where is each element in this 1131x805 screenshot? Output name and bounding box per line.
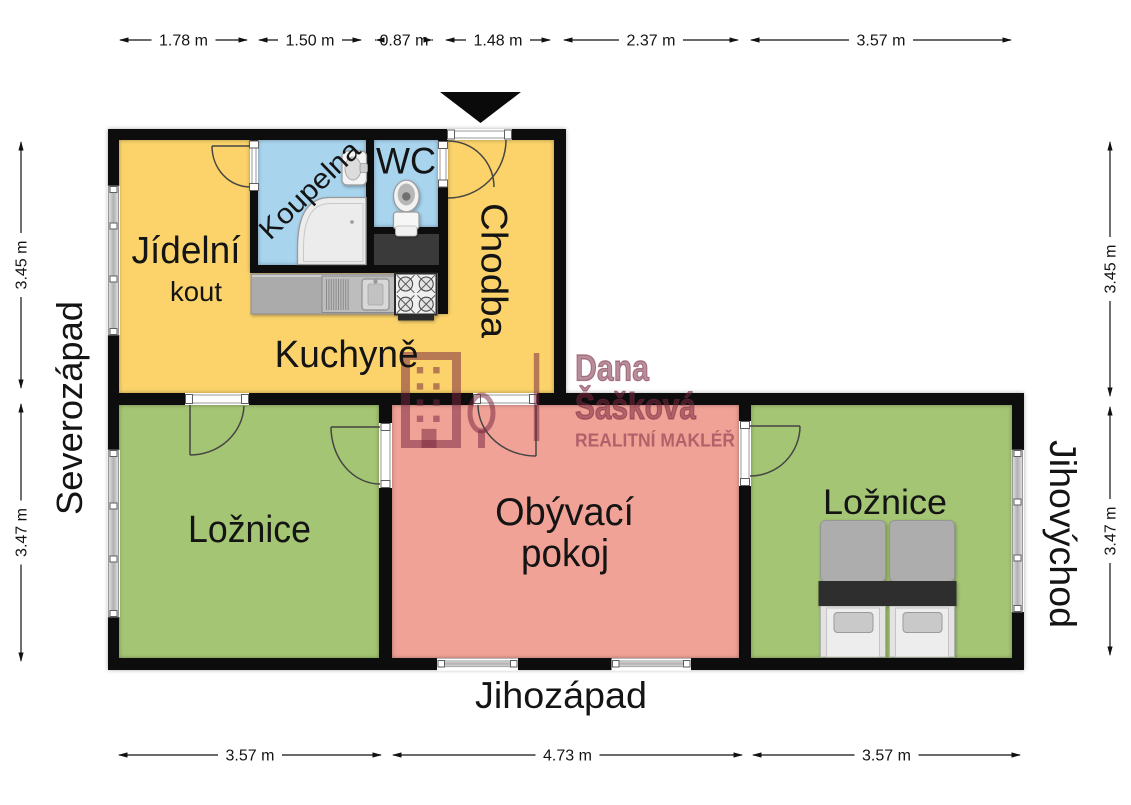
svg-text:3.45 m: 3.45 m	[14, 241, 31, 290]
svg-text:3.47 m: 3.47 m	[14, 508, 31, 557]
svg-text:Jihovýchod: Jihovýchod	[1042, 440, 1084, 628]
svg-text:pokoj: pokoj	[521, 533, 609, 576]
svg-text:kout: kout	[170, 276, 222, 307]
svg-text:REALITNÍ MAKLÉŘ: REALITNÍ MAKLÉŘ	[575, 430, 735, 451]
svg-text:Šašková: Šašková	[575, 385, 696, 427]
svg-text:3.57 m: 3.57 m	[226, 748, 275, 765]
svg-text:3.47 m: 3.47 m	[1103, 507, 1120, 556]
svg-text:Severozápad: Severozápad	[49, 301, 90, 515]
svg-text:4.73 m: 4.73 m	[543, 748, 592, 765]
svg-text:3.45 m: 3.45 m	[1103, 245, 1120, 294]
svg-text:Obývací: Obývací	[495, 491, 634, 534]
svg-text:Jídelní: Jídelní	[132, 230, 241, 272]
svg-text:Ložnice: Ložnice	[823, 482, 947, 522]
svg-text:Jihozápad: Jihozápad	[475, 674, 647, 716]
svg-text:3.57 m: 3.57 m	[857, 33, 906, 50]
svg-text:Ložnice: Ložnice	[188, 509, 311, 551]
svg-text:1.48 m: 1.48 m	[474, 33, 523, 50]
svg-text:3.57 m: 3.57 m	[862, 748, 911, 765]
svg-text:1.78 m: 1.78 m	[159, 33, 208, 50]
svg-text:Kuchyně: Kuchyně	[275, 334, 419, 376]
svg-text:WC: WC	[376, 139, 436, 181]
svg-text:2.37 m: 2.37 m	[627, 33, 676, 50]
svg-text:Chodba: Chodba	[474, 203, 515, 338]
svg-text:Dana: Dana	[575, 348, 649, 389]
svg-text:1.50 m: 1.50 m	[286, 33, 335, 50]
svg-text:0.87 m: 0.87 m	[380, 33, 429, 50]
